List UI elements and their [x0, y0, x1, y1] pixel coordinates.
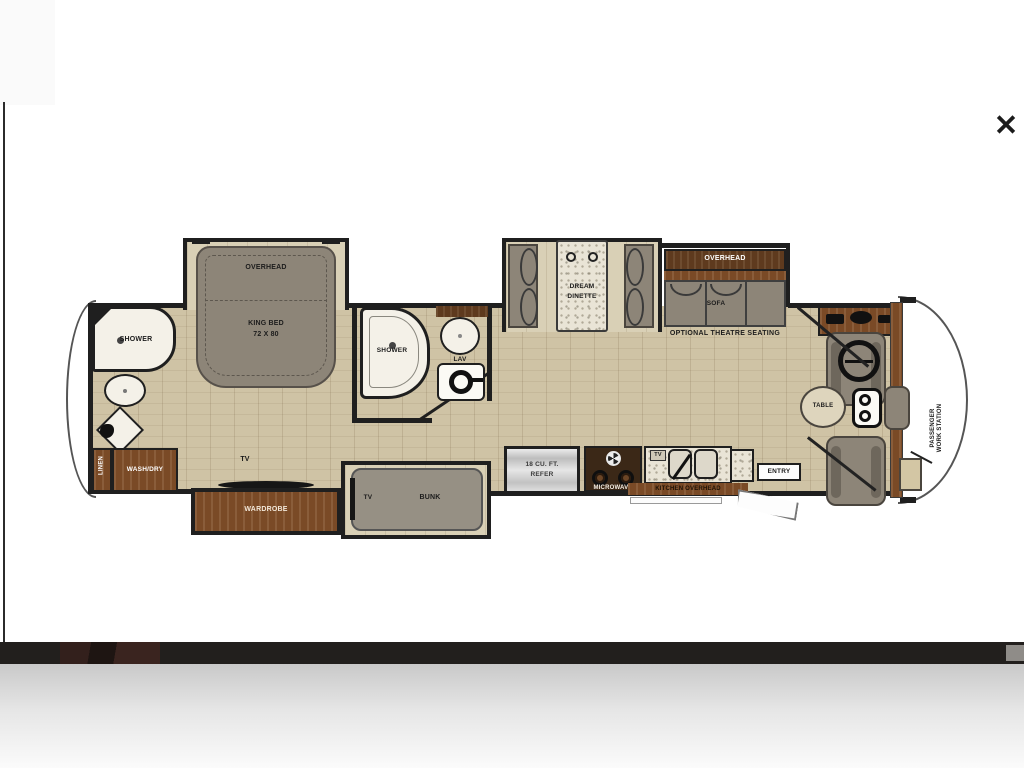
- dinette-bench-left: [508, 244, 538, 328]
- lightbox-viewer: { "viewer": { "close_icon": "✕" }, "plan…: [0, 0, 1024, 768]
- top-left-shade: [0, 0, 55, 105]
- side-chair: [884, 386, 910, 430]
- sofa-label: SOFA: [686, 300, 746, 307]
- dinette-label-1: DREAM: [552, 283, 612, 290]
- linen-label: LINEN: [99, 450, 106, 480]
- midbath-right-wall: [487, 303, 492, 401]
- close-icon[interactable]: ✕: [988, 108, 1024, 144]
- king-bed-label-2: 72 X 80: [216, 331, 316, 339]
- lav-sink: [440, 317, 480, 355]
- sofa-overhead-label: OVERHEAD: [666, 255, 784, 263]
- rear-shower-label: SHOWER: [108, 336, 164, 344]
- vent-fan-icon: [606, 451, 621, 466]
- wash-dry-label: WASH/DRY: [114, 466, 176, 473]
- passenger-ws-label: PASSENGER WORK STATION: [930, 376, 950, 480]
- sofa-backwall-strip: [664, 271, 786, 280]
- console-cupholders: [852, 388, 882, 428]
- shower-corner-seat: [95, 309, 111, 325]
- next-slide-strip[interactable]: [0, 642, 1024, 664]
- passenger-work-station-desk: [899, 458, 922, 491]
- refrigerator: [504, 446, 580, 494]
- midbath-left-wall: [352, 303, 357, 423]
- passenger-ws-line1: PASSENGER: [930, 376, 937, 480]
- slide-marker-2: [322, 238, 340, 244]
- patio-marker: [630, 497, 722, 504]
- bunk-tv: [350, 478, 355, 520]
- kitchen-tv-label: TV: [650, 452, 666, 458]
- passenger-seat: [826, 436, 886, 506]
- bunk-tv-label: TV: [358, 494, 378, 501]
- top-wall-c: [660, 243, 790, 248]
- entry-cabinet: [730, 449, 754, 482]
- bottom-fade: [0, 664, 1024, 768]
- mid-shower-label: SHOWER: [364, 347, 420, 354]
- dinette-bench-right: [624, 244, 654, 328]
- bunk-label: BUNK: [400, 494, 460, 502]
- dinette-label-2: DINETTE: [552, 293, 612, 300]
- king-bed-label-1: KING BED: [216, 320, 316, 328]
- next-slide-thumb-light: [1006, 645, 1024, 661]
- next-slide-thumb-detail: [60, 642, 160, 664]
- theatre-seating-note: OPTIONAL THEATRE SEATING: [642, 330, 808, 338]
- slide-marker-1: [192, 238, 210, 244]
- refer-label-2: REFER: [506, 471, 578, 478]
- rear-toilet: [104, 374, 146, 407]
- previous-slide-edge: [3, 102, 5, 642]
- kitchen-overhead-label: KITCHEN OVERHEAD: [628, 486, 748, 493]
- table-label: TABLE: [802, 403, 844, 410]
- entry-label: ENTRY: [757, 468, 801, 475]
- passenger-ws-line2: WORK STATION: [937, 376, 944, 480]
- bedroom-tv-label: TV: [230, 456, 260, 464]
- kitchen-sink-2: [694, 449, 718, 479]
- wardrobe-label: WARDROBE: [201, 506, 331, 514]
- burner-icon: [592, 470, 608, 486]
- lav-shelf: [436, 306, 488, 317]
- bed-overhead-label: OVERHEAD: [216, 264, 316, 272]
- wall-step-vertical: [786, 243, 790, 307]
- mid-toilet: [437, 363, 485, 401]
- refer-label-1: 18 CU. FT.: [506, 461, 578, 468]
